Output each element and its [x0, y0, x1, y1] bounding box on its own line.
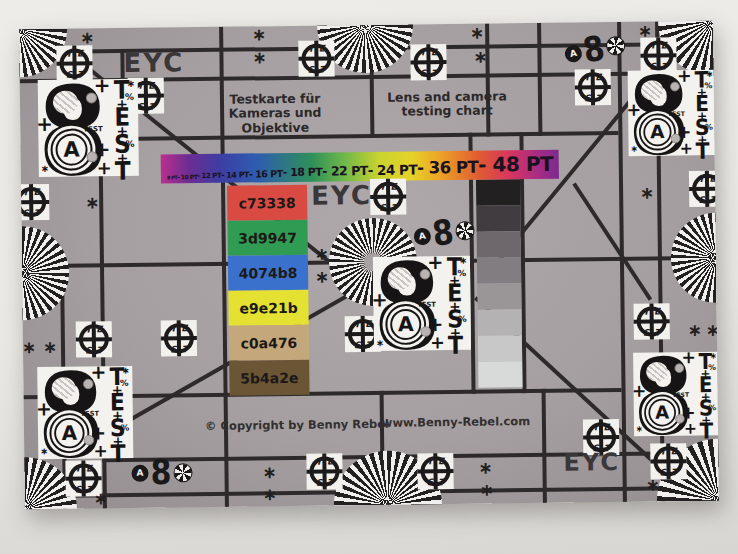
color-patch-green: 3d9947 — [227, 220, 307, 256]
test-target: TEST — [689, 171, 719, 207]
block-plus: + — [93, 440, 108, 460]
block-percent: % — [125, 139, 134, 149]
block-asterisk: ∗ — [40, 446, 48, 457]
grayscale-step — [476, 205, 520, 232]
color-patch-yellow: e9e21b — [228, 290, 308, 326]
block-plus: + — [632, 380, 647, 401]
resolution-block-8-bottom-left: 8 A T+E+S+T TEST <<< % % + + + + + ∗ ∗ — [37, 366, 133, 459]
block-percent: % — [121, 423, 130, 433]
test-target: TEST — [417, 453, 453, 489]
asterisk-mark: ∗ — [85, 192, 99, 212]
block-plus: + — [430, 332, 445, 353]
block-a-circle: A — [385, 304, 426, 345]
color-patch-label: c0a476 — [240, 334, 297, 351]
mini-pattern-disc — [604, 34, 626, 56]
grayscale-step — [477, 257, 521, 284]
asterisk-mark: ∗ — [262, 462, 276, 482]
block-plus: + — [684, 419, 697, 437]
color-patch-brown: 5b4a2e — [229, 360, 309, 396]
block-percent: % — [709, 403, 717, 412]
eyc-label-bottom-right: EYC — [563, 448, 620, 477]
asterisk-mark: ∗ — [480, 479, 494, 499]
asterisk-mark: ∗ — [22, 337, 36, 357]
mini-a-disc: A — [413, 226, 432, 245]
color-patch-red: c73338 — [227, 185, 307, 221]
block-dot — [670, 82, 680, 92]
block-asterisk: ∗ — [636, 424, 643, 434]
block-dot — [675, 414, 685, 424]
asterisk-mark: ∗ — [252, 24, 266, 44]
grayscale-step — [478, 335, 522, 362]
pt-size-label: - 12 PT — [197, 172, 221, 180]
color-patch-label: c73338 — [239, 194, 296, 211]
mini-a-disc: A — [131, 464, 148, 481]
block-plus: + — [626, 99, 641, 120]
pt-size-label: - 10 PT — [177, 173, 197, 180]
test-target: TEST — [633, 303, 669, 339]
block-texture-circle — [641, 80, 663, 101]
block-percent: % — [458, 314, 467, 324]
test-target: TEST — [161, 320, 197, 356]
block-plus: + — [97, 157, 112, 178]
asterisk-mark: ∗ — [645, 474, 659, 494]
title-line: Kameras und Objektive — [198, 106, 352, 137]
block-test-small: TEST — [417, 301, 436, 309]
title-line: testing chart — [372, 103, 522, 119]
color-patch-label: 4074b8 — [239, 264, 298, 281]
asterisk-mark: ∗ — [470, 23, 484, 43]
asterisk-mark: ∗ — [640, 183, 654, 203]
website-text: www.Benny-Rebel.com — [356, 414, 556, 430]
block-test-small: TEST — [81, 410, 99, 418]
block-dot — [675, 363, 685, 373]
block-dot — [420, 326, 431, 337]
block-plus: + — [680, 139, 694, 158]
chart-title-english: Lens and camera testing chart — [372, 89, 522, 120]
block-plus: + — [36, 112, 53, 136]
grayscale-step — [478, 361, 522, 388]
mini-8-digit: 8 — [431, 217, 456, 249]
block-asterisk: ∗ — [706, 69, 714, 79]
asterisk-mark: ∗ — [94, 488, 108, 508]
eyc-label-top-left: EYC — [123, 47, 184, 78]
mini-8-digit: 8 — [150, 457, 171, 487]
asterisk-mark: ∗ — [252, 47, 266, 67]
mini-pattern-disc — [173, 463, 192, 482]
test-target: TEST — [306, 453, 342, 489]
mini-8a-marker: A 8 — [131, 459, 192, 486]
block-test-small: TEST — [672, 392, 689, 399]
asterisk-mark: ∗ — [315, 266, 329, 286]
block-asterisk: ∗ — [459, 255, 467, 266]
test-target: TEST — [575, 69, 611, 105]
color-patch-blue: 4074b8 — [228, 255, 308, 291]
asterisk-mark: ∗ — [43, 337, 57, 357]
block-percent: % — [125, 92, 134, 102]
asterisk-mark: ∗ — [473, 47, 487, 67]
pt-size-label: - 24 PT — [368, 161, 418, 178]
resolution-block-8-bottom-right: 8 A T+E+S+T TEST <<< % % + + + + + ∗ ∗ — [633, 352, 719, 436]
block-plus: + — [90, 361, 106, 384]
pt-size-label: - 22 PT — [322, 163, 368, 179]
block-dot — [420, 269, 431, 280]
color-patch-label: 3d9947 — [238, 229, 297, 246]
pt-size-label: - 36 PT — [417, 158, 478, 178]
grayscale-step — [478, 309, 522, 336]
mini-8-digit: 8 — [581, 33, 607, 66]
color-patch-label: e9e21b — [239, 299, 297, 316]
block-plus: + — [677, 65, 692, 86]
block-test-small: TEST — [83, 125, 102, 133]
eyc-label-center: EYC — [311, 180, 372, 211]
test-target: TEST — [410, 44, 446, 80]
block-asterisk: ∗ — [122, 365, 130, 376]
grayscale-step — [477, 283, 521, 310]
block-asterisk: ∗ — [710, 351, 717, 361]
font-size-rainbow-bar: 8 PT - 10 PT - 12 PT - 14 PT - 16 PT - 1… — [161, 150, 559, 184]
asterisk-mark: ∗ — [263, 484, 277, 504]
grayscale-step — [476, 179, 520, 206]
block-percent: % — [457, 268, 466, 278]
block-percent: % — [120, 378, 129, 388]
asterisk-mark: ∗ — [315, 243, 329, 263]
pt-size-label: - 18 PT — [283, 166, 323, 179]
test-target: TEST — [298, 40, 334, 76]
block-dot — [86, 92, 97, 103]
block-asterisk: ∗ — [41, 163, 50, 174]
grayscale-step — [477, 231, 521, 258]
block-percent: % — [705, 123, 713, 132]
block-test-small: TEST — [668, 111, 685, 118]
photo-of-camera-test-chart: { "card": { "eyc_label": "EYC", "title_d… — [0, 0, 738, 554]
asterisk-mark: ∗ — [80, 27, 94, 47]
block-percent: % — [704, 81, 712, 90]
block-dot — [87, 151, 98, 162]
block-plus: + — [94, 73, 111, 97]
asterisk-mark: ∗ — [688, 320, 702, 340]
block-dot — [83, 379, 94, 390]
asterisk-mark: ∗ — [638, 21, 652, 41]
block-plus: + — [371, 288, 388, 311]
pt-size-label: 8 PT — [167, 174, 177, 180]
test-target: TEST — [370, 179, 406, 215]
test-chart-card: c73338 3d9947 4074b8 e9e21b c0a476 5b4a2… — [19, 21, 719, 509]
pt-size-label: - 16 PT — [249, 168, 283, 179]
block-dot — [84, 435, 95, 446]
block-plus: + — [36, 397, 52, 420]
resolution-block-8-center: 8 A T+E+S+T TEST <<< % % + + + + + ∗ ∗ — [373, 256, 471, 351]
asterisk-mark: ∗ — [706, 320, 719, 340]
pt-size-label: - 14 PT — [221, 170, 249, 179]
mini-pattern-disc — [454, 220, 475, 241]
chart-title-german: Testkarte für Kameras und Objektive — [198, 91, 353, 136]
block-plus: + — [681, 347, 696, 368]
block-dot — [671, 134, 681, 144]
block-percent: % — [708, 363, 716, 372]
pt-size-label: - 48 PT — [478, 152, 553, 177]
resolution-block-8-top-right: 8 A T+E+S+T TEST <<< % % + + + + + ∗ ∗ — [628, 70, 717, 156]
mini-a-disc: A — [563, 43, 583, 63]
color-patch-label: 5b4a2e — [240, 369, 298, 386]
block-asterisk: ∗ — [376, 337, 384, 348]
block-asterisk: ∗ — [127, 78, 136, 89]
asterisk-mark: ∗ — [478, 458, 492, 478]
block-asterisk: ∗ — [630, 144, 638, 154]
color-patch-tan: c0a476 — [229, 325, 309, 361]
resolution-block-8-top-left: 8 A T+E+S+T TEST <<< % % + + + + + ∗ ∗ — [38, 79, 139, 177]
